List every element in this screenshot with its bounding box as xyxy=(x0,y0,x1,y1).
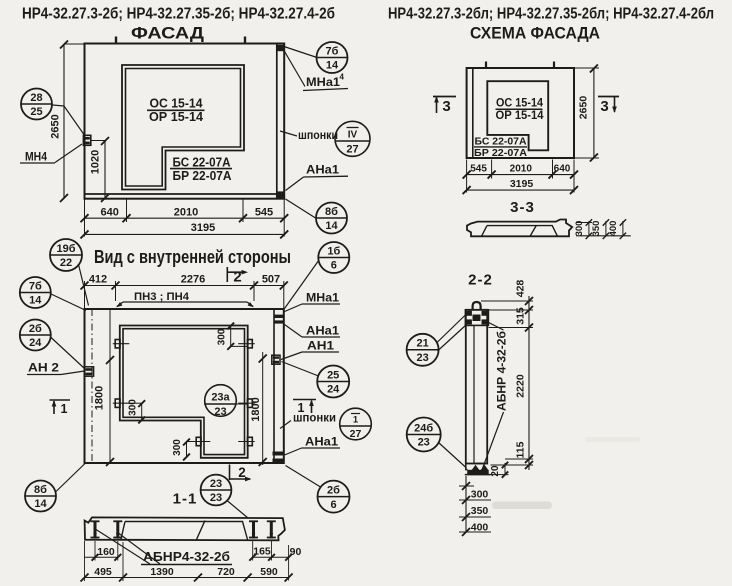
svg-text:2б: 2б xyxy=(327,484,340,496)
svg-text:ПН3 ; ПН4: ПН3 ; ПН4 xyxy=(134,291,190,303)
svg-text:14: 14 xyxy=(34,498,47,510)
svg-text:ОР 15-14: ОР 15-14 xyxy=(496,110,545,122)
svg-text:2б: 2б xyxy=(29,323,42,335)
svg-text:23: 23 xyxy=(210,492,222,504)
svg-text:23: 23 xyxy=(210,478,222,490)
svg-text:25: 25 xyxy=(327,369,339,381)
svg-text:428: 428 xyxy=(515,280,527,298)
svg-text:20: 20 xyxy=(490,465,501,477)
svg-text:БС 22-07А: БС 22-07А xyxy=(475,136,527,148)
svg-text:2: 2 xyxy=(238,465,246,480)
svg-text:МН4: МН4 xyxy=(25,152,48,164)
svg-text:300: 300 xyxy=(127,399,138,416)
svg-text:2010: 2010 xyxy=(510,164,533,175)
svg-text:2220: 2220 xyxy=(515,374,527,398)
svg-text:2276: 2276 xyxy=(181,274,205,286)
svg-text:АБНР4-32-2б: АБНР4-32-2б xyxy=(143,550,230,564)
svg-text:Вид с внутренней стороны: Вид с внутренней стороны xyxy=(94,247,291,267)
svg-text:6: 6 xyxy=(331,260,337,272)
svg-text:ОС 15-14: ОС 15-14 xyxy=(150,97,203,111)
svg-text:1800: 1800 xyxy=(250,397,262,421)
svg-text:3195: 3195 xyxy=(510,178,534,190)
svg-text:90: 90 xyxy=(290,546,302,558)
svg-text:ОР 15-14: ОР 15-14 xyxy=(149,110,203,124)
svg-text:3: 3 xyxy=(442,98,450,115)
svg-text:3-3: 3-3 xyxy=(510,199,535,216)
svg-text:6: 6 xyxy=(330,499,336,511)
svg-text:22: 22 xyxy=(60,257,72,269)
svg-text:23: 23 xyxy=(214,406,226,418)
svg-text:300: 300 xyxy=(172,439,183,456)
svg-text:1800: 1800 xyxy=(94,386,106,410)
svg-text:495: 495 xyxy=(94,566,112,578)
svg-text:115: 115 xyxy=(515,441,527,458)
svg-text:315: 315 xyxy=(515,307,527,325)
svg-text:8б: 8б xyxy=(325,206,338,218)
svg-text:412: 412 xyxy=(89,274,107,286)
svg-text:350: 350 xyxy=(591,221,602,237)
svg-text:АНа1: АНа1 xyxy=(306,165,340,177)
svg-text:24: 24 xyxy=(29,337,42,349)
svg-text:4: 4 xyxy=(340,73,345,82)
svg-text:640: 640 xyxy=(554,164,571,175)
svg-text:НР4-32.27.3-2бл; НР4-32.27.35-: НР4-32.27.3-2бл; НР4-32.27.35-2бл; НР4-3… xyxy=(388,6,714,23)
svg-text:7б: 7б xyxy=(29,280,42,292)
svg-text:1020: 1020 xyxy=(89,150,101,174)
svg-text:24: 24 xyxy=(327,384,340,396)
svg-text:160: 160 xyxy=(97,546,115,558)
svg-text:МНа1: МНа1 xyxy=(306,77,341,89)
svg-text:23: 23 xyxy=(418,437,430,449)
svg-text:7б: 7б xyxy=(326,45,339,57)
svg-text:300: 300 xyxy=(471,489,489,501)
svg-text:АБНР 4-32-2б: АБНР 4-32-2б xyxy=(495,331,509,411)
svg-text:2010: 2010 xyxy=(174,206,198,218)
svg-text:2650: 2650 xyxy=(577,96,589,120)
svg-text:25: 25 xyxy=(30,106,42,118)
svg-text:2650: 2650 xyxy=(50,114,62,138)
svg-text:2-2: 2-2 xyxy=(468,272,493,289)
svg-text:23а: 23а xyxy=(211,392,230,404)
svg-text:1: 1 xyxy=(61,402,68,416)
svg-text:ОС 15-14: ОС 15-14 xyxy=(496,98,544,110)
svg-text:640: 640 xyxy=(101,206,119,218)
svg-text:АНа1: АНа1 xyxy=(306,326,340,338)
svg-text:27: 27 xyxy=(346,144,358,156)
svg-text:14: 14 xyxy=(29,295,42,307)
svg-text:1390: 1390 xyxy=(150,566,174,578)
svg-text:БР 22-07А: БР 22-07А xyxy=(173,169,232,183)
svg-text:300: 300 xyxy=(217,328,228,345)
svg-text:545: 545 xyxy=(255,206,273,218)
svg-text:СХЕМА ФАСАДА: СХЕМА ФАСАДА xyxy=(470,24,600,43)
svg-text:23: 23 xyxy=(416,352,428,364)
svg-text:8б: 8б xyxy=(34,484,47,496)
svg-text:21: 21 xyxy=(416,338,428,350)
svg-text:МНа1: МНа1 xyxy=(306,293,340,305)
svg-text:507: 507 xyxy=(262,274,280,286)
svg-text:АНа1: АНа1 xyxy=(305,437,339,449)
svg-text:720: 720 xyxy=(217,566,235,578)
svg-text:24б: 24б xyxy=(414,422,433,434)
svg-text:НР4-32.27.3-2б; НР4-32.27.35-2: НР4-32.27.3-2б; НР4-32.27.35-2б; НР4-32.… xyxy=(22,6,335,23)
svg-text:1-1: 1-1 xyxy=(173,491,198,508)
svg-text:19б: 19б xyxy=(56,243,75,255)
svg-text:350: 350 xyxy=(471,505,489,517)
svg-text:165: 165 xyxy=(253,546,271,558)
svg-text:ФАСАД: ФАСАД xyxy=(131,24,204,43)
svg-text:28: 28 xyxy=(30,92,42,104)
svg-text:545: 545 xyxy=(470,164,487,175)
svg-text:АН 2: АН 2 xyxy=(28,363,59,375)
svg-text:2: 2 xyxy=(233,269,241,286)
svg-text:IV: IV xyxy=(348,130,358,141)
svg-text:590: 590 xyxy=(260,566,278,578)
svg-text:АН1: АН1 xyxy=(307,341,335,353)
svg-text:14: 14 xyxy=(326,60,339,72)
svg-text:1б: 1б xyxy=(327,245,340,257)
svg-text:1: 1 xyxy=(353,415,359,426)
svg-text:14: 14 xyxy=(325,220,338,232)
svg-text:БР 22-07А: БР 22-07А xyxy=(474,147,527,159)
svg-text:400: 400 xyxy=(608,221,619,237)
svg-text:БС 22-07А: БС 22-07А xyxy=(173,156,231,170)
svg-text:3195: 3195 xyxy=(191,222,215,234)
svg-text:27: 27 xyxy=(350,428,362,440)
svg-text:шпонки: шпонки xyxy=(298,130,338,142)
svg-text:шпонки: шпонки xyxy=(293,413,336,425)
svg-text:3: 3 xyxy=(600,98,608,115)
